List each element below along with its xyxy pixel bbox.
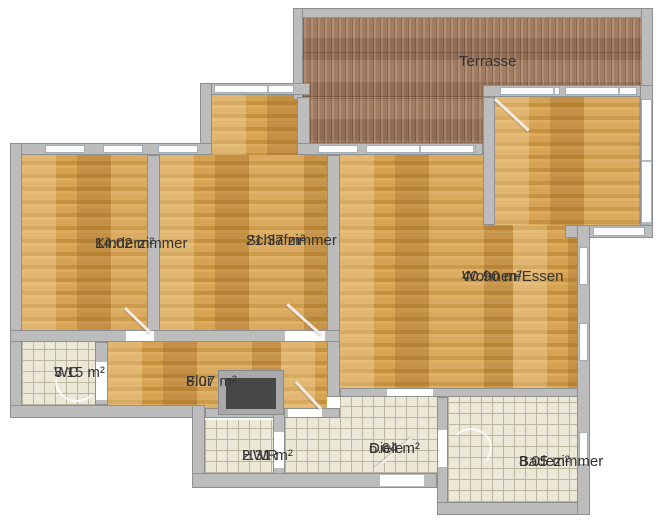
window xyxy=(579,323,588,361)
window xyxy=(565,87,637,95)
wall-wohnen-bottom xyxy=(340,388,590,397)
room-area: 3.15 m² xyxy=(54,363,105,382)
door-gap-badezimmer xyxy=(438,430,447,467)
window xyxy=(214,85,294,93)
floor-diele-upper xyxy=(340,397,437,418)
wall-terrace-top xyxy=(295,8,653,18)
floor-plan: Terrasse Kinderzimmer 14.02 m² Schlafzim… xyxy=(0,0,660,520)
opening-diele-wohnen xyxy=(387,389,433,396)
room-area: 21.37 m² xyxy=(246,231,305,250)
window xyxy=(103,145,143,153)
door-gap-entrance xyxy=(380,475,424,486)
window xyxy=(318,145,358,153)
room-area: 40.90 m² xyxy=(462,267,521,286)
floor-terrasse-lower xyxy=(303,97,483,143)
wall-west xyxy=(10,143,22,418)
room-area: 14.02 m² xyxy=(95,234,154,253)
room-name: Terrasse xyxy=(459,52,517,71)
window xyxy=(579,247,588,285)
window xyxy=(45,145,85,153)
room-area: 2.31 m² xyxy=(242,446,293,465)
room-area: 8.05 m² xyxy=(519,452,570,471)
room-area: 8.07 m² xyxy=(186,372,237,391)
wall-south-west xyxy=(10,405,205,418)
wall-flur-wohnen-divider xyxy=(327,155,340,397)
window xyxy=(500,87,560,95)
wall-alcove-left xyxy=(483,97,495,225)
wall-terrace-right xyxy=(641,8,653,88)
window xyxy=(641,99,652,225)
floor-schlafzimmer-niche xyxy=(212,95,297,155)
window xyxy=(366,145,476,153)
window xyxy=(158,145,198,153)
wall-bad-bottom xyxy=(437,502,590,515)
door-arc-badezimmer xyxy=(450,428,492,468)
room-area: 6.64 m² xyxy=(369,439,420,458)
floor-wohnen-essen-alcove xyxy=(495,97,640,225)
door-gap-flur-diele xyxy=(288,409,322,417)
window xyxy=(593,227,645,236)
